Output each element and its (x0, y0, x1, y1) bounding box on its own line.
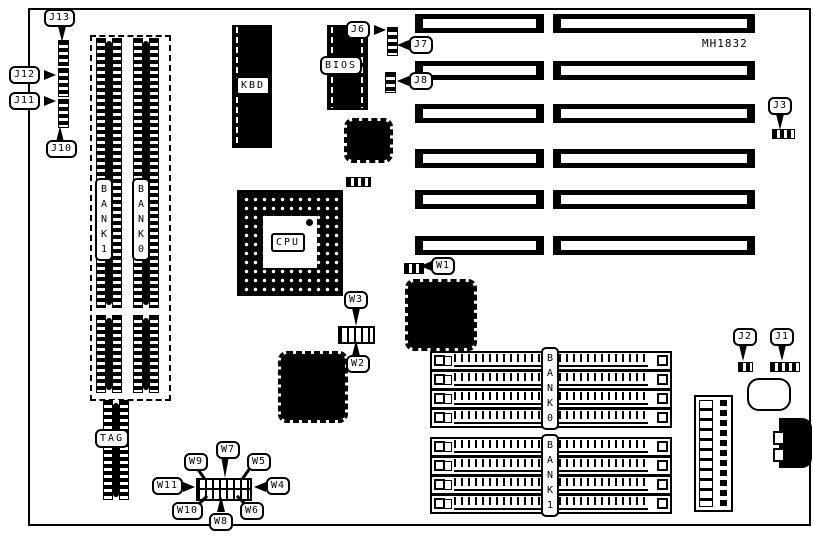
simm-socket-vertical (133, 315, 159, 393)
callout-w2: W2 (346, 355, 370, 373)
isa-slot-segment (415, 104, 544, 123)
power-connector (694, 395, 733, 512)
callout-j6-tail (374, 25, 386, 35)
callout-w5: W5 (247, 453, 271, 471)
tag-label: TAG (95, 429, 129, 448)
callout-j3: J3 (768, 97, 792, 115)
jumper-strip-j10 (58, 99, 69, 128)
isa-slot-segment (553, 14, 755, 33)
callout-j8-tail (397, 76, 409, 86)
callout-j12: J12 (9, 66, 40, 84)
callout-j11-tail (44, 96, 56, 106)
chipset-ic-left (281, 354, 345, 420)
power-connector-pins-left (699, 400, 713, 507)
motherboard-diagram: J13 J12 J11 J10 BANK1 BANK0 TAG KBD BIOS… (0, 0, 813, 539)
callout-w11: W11 (152, 477, 183, 495)
callout-j8: J8 (409, 72, 433, 90)
bank0-left-label: BANK0 (132, 178, 150, 261)
simm-socket-vertical (96, 315, 122, 393)
callout-j7: J7 (409, 36, 433, 54)
callout-j13-tail (58, 26, 66, 42)
isa-slot-segment (415, 14, 544, 33)
din-connector-tab (773, 448, 785, 462)
callout-w4-tail (254, 482, 266, 492)
isa-slot-segment (415, 149, 544, 168)
simm-socket-vertical (96, 38, 122, 308)
callout-j2: J2 (733, 328, 757, 346)
callout-j12-tail (44, 70, 56, 80)
callout-w7: W7 (216, 441, 240, 459)
isa-slot-segment (553, 149, 755, 168)
callout-j10: J10 (46, 140, 77, 158)
callout-w6: W6 (240, 502, 264, 520)
board-model-text: MH1832 (702, 37, 748, 50)
callout-j11: J11 (9, 92, 40, 110)
callout-w3: W3 (344, 291, 368, 309)
chipset-ic-small (347, 121, 390, 160)
power-connector-pins-right (720, 400, 727, 507)
callout-j1-tail (778, 345, 786, 361)
isa-slot-segment (415, 190, 544, 209)
chipset-ic-right (408, 282, 474, 348)
callout-j6: J6 (346, 21, 370, 39)
callout-j7-tail (397, 40, 409, 50)
callout-w9: W9 (184, 453, 208, 471)
oscillator-outline (747, 378, 791, 411)
callout-j1: J1 (770, 328, 794, 346)
callout-j13: J13 (44, 9, 75, 27)
callout-w8: W8 (209, 513, 233, 531)
jumper-strip-j12-j11 (58, 68, 69, 97)
isa-slot-segment (553, 104, 755, 123)
isa-slot-segment (553, 190, 755, 209)
callout-w8-tail (217, 496, 225, 512)
jumper-strip-j13 (58, 40, 69, 66)
bank0-right-label: BANK0 (541, 347, 559, 430)
jumper-j1 (770, 362, 800, 372)
bank1-right-label: BANK1 (541, 434, 559, 517)
callout-w2-tail (352, 340, 360, 356)
isa-slot-segment (415, 236, 544, 255)
jumper-j3 (772, 129, 795, 139)
callout-j2-tail (739, 345, 747, 361)
callout-j3-tail (776, 114, 784, 130)
jumper-j2 (738, 362, 753, 372)
tag-socket (103, 400, 129, 500)
simm-socket-vertical (133, 38, 159, 308)
cpu-pin1-dot (306, 219, 313, 226)
callout-w3-tail (352, 308, 360, 326)
din-connector-tab (773, 431, 785, 445)
kbd-label: KBD (236, 76, 270, 95)
callout-w4: W4 (266, 477, 290, 495)
isa-slot-segment (553, 61, 755, 80)
header-small (346, 177, 371, 187)
cpu-label: CPU (271, 233, 305, 252)
bank1-left-label: BANK1 (95, 178, 113, 261)
callout-w11-tail (183, 482, 195, 492)
jumper-strip-j8 (385, 72, 396, 93)
callout-w1: W1 (431, 257, 455, 275)
callout-w10: W10 (172, 502, 203, 520)
callout-w7-tail (221, 456, 229, 478)
isa-slot-segment (553, 236, 755, 255)
bios-label: BIOS (320, 56, 362, 75)
isa-slot-segment (415, 61, 544, 80)
